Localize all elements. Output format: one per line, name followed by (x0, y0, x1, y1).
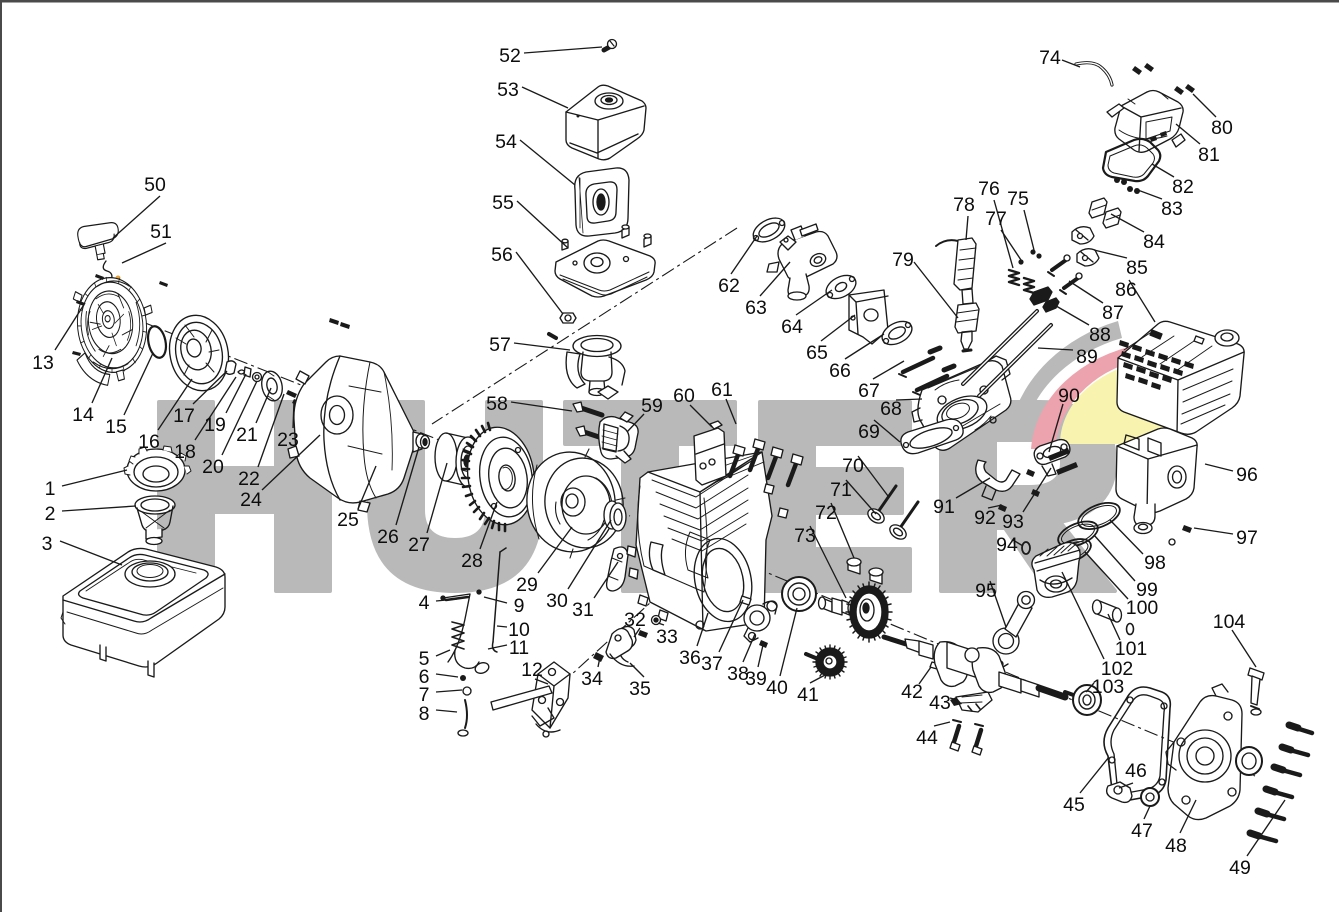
svg-text:82: 82 (1172, 176, 1194, 198)
svg-text:23: 23 (277, 429, 299, 451)
svg-text:40: 40 (766, 677, 788, 699)
svg-text:26: 26 (377, 526, 399, 548)
svg-text:56: 56 (491, 244, 513, 266)
svg-text:90: 90 (1058, 385, 1080, 407)
svg-text:62: 62 (718, 275, 740, 297)
svg-text:4: 4 (419, 592, 430, 614)
svg-text:59: 59 (641, 395, 663, 417)
svg-text:97: 97 (1236, 527, 1258, 549)
svg-text:71: 71 (830, 479, 852, 501)
svg-text:21: 21 (236, 424, 258, 446)
svg-text:37: 37 (701, 653, 723, 675)
svg-text:69: 69 (858, 421, 880, 443)
svg-text:33: 33 (656, 626, 678, 648)
svg-text:95: 95 (975, 580, 997, 602)
svg-text:64: 64 (781, 316, 803, 338)
svg-text:78: 78 (953, 194, 975, 216)
svg-text:58: 58 (486, 393, 508, 415)
svg-text:46: 46 (1125, 760, 1147, 782)
svg-text:32: 32 (624, 609, 646, 631)
svg-text:104: 104 (1213, 611, 1246, 633)
svg-text:100: 100 (1126, 597, 1159, 619)
svg-text:19: 19 (204, 414, 226, 436)
svg-text:68: 68 (880, 398, 902, 420)
svg-text:72: 72 (815, 502, 837, 524)
svg-text:79: 79 (892, 249, 914, 271)
svg-text:31: 31 (572, 599, 594, 621)
svg-text:11: 11 (509, 637, 529, 659)
svg-text:1: 1 (45, 478, 56, 500)
svg-text:54: 54 (495, 131, 517, 153)
svg-text:70: 70 (842, 455, 864, 477)
svg-text:92: 92 (974, 507, 996, 529)
svg-text:48: 48 (1165, 835, 1187, 857)
svg-text:41: 41 (797, 684, 819, 706)
svg-text:9: 9 (514, 595, 525, 617)
svg-text:22: 22 (238, 468, 260, 490)
svg-text:87: 87 (1102, 302, 1124, 324)
svg-text:96: 96 (1236, 464, 1258, 486)
svg-text:25: 25 (337, 509, 359, 531)
svg-text:83: 83 (1161, 198, 1183, 220)
svg-text:12: 12 (521, 659, 543, 681)
svg-text:30: 30 (546, 590, 568, 612)
svg-text:74: 74 (1039, 47, 1061, 69)
svg-text:91: 91 (933, 496, 955, 518)
svg-text:29: 29 (516, 574, 538, 596)
svg-text:8: 8 (419, 703, 430, 725)
svg-text:45: 45 (1063, 794, 1085, 816)
svg-text:89: 89 (1076, 346, 1098, 368)
svg-text:36: 36 (679, 647, 701, 669)
svg-text:16: 16 (138, 431, 160, 453)
svg-text:93: 93 (1002, 511, 1024, 533)
svg-text:34: 34 (581, 668, 603, 690)
svg-text:20: 20 (202, 456, 224, 478)
svg-text:47: 47 (1131, 820, 1153, 842)
svg-text:13: 13 (32, 352, 54, 374)
svg-text:43: 43 (929, 692, 951, 714)
svg-text:98: 98 (1144, 552, 1166, 574)
svg-text:49: 49 (1229, 857, 1251, 879)
svg-text:65: 65 (806, 342, 828, 364)
svg-text:77: 77 (985, 208, 1007, 230)
svg-text:73: 73 (794, 525, 816, 547)
svg-text:28: 28 (461, 550, 483, 572)
svg-text:24: 24 (240, 489, 262, 511)
svg-text:17: 17 (173, 405, 195, 427)
svg-text:60: 60 (673, 385, 695, 407)
svg-text:14: 14 (72, 404, 94, 426)
svg-text:51: 51 (150, 221, 172, 243)
svg-text:35: 35 (629, 678, 651, 700)
svg-text:75: 75 (1007, 188, 1029, 210)
svg-text:50: 50 (144, 174, 166, 196)
svg-text:86: 86 (1115, 279, 1137, 301)
svg-text:15: 15 (105, 416, 127, 438)
svg-text:101: 101 (1115, 638, 1148, 660)
svg-text:94: 94 (996, 534, 1018, 556)
svg-text:103: 103 (1092, 676, 1125, 698)
svg-text:53: 53 (497, 79, 519, 101)
svg-text:27: 27 (408, 534, 430, 556)
svg-text:39: 39 (745, 668, 767, 690)
svg-text:52: 52 (499, 45, 521, 67)
svg-text:80: 80 (1211, 117, 1233, 139)
svg-text:85: 85 (1126, 257, 1148, 279)
svg-text:42: 42 (901, 681, 923, 703)
svg-text:2: 2 (45, 503, 56, 525)
svg-text:66: 66 (829, 360, 851, 382)
svg-text:57: 57 (489, 334, 511, 356)
svg-text:18: 18 (174, 441, 196, 463)
svg-text:61: 61 (711, 379, 733, 401)
svg-text:88: 88 (1089, 324, 1111, 346)
svg-text:63: 63 (745, 297, 767, 319)
svg-text:76: 76 (978, 178, 1000, 200)
svg-text:67: 67 (858, 380, 880, 402)
svg-text:3: 3 (42, 533, 53, 555)
svg-text:84: 84 (1143, 231, 1165, 253)
svg-text:81: 81 (1198, 144, 1220, 166)
svg-text:44: 44 (916, 727, 938, 749)
svg-text:55: 55 (492, 192, 514, 214)
